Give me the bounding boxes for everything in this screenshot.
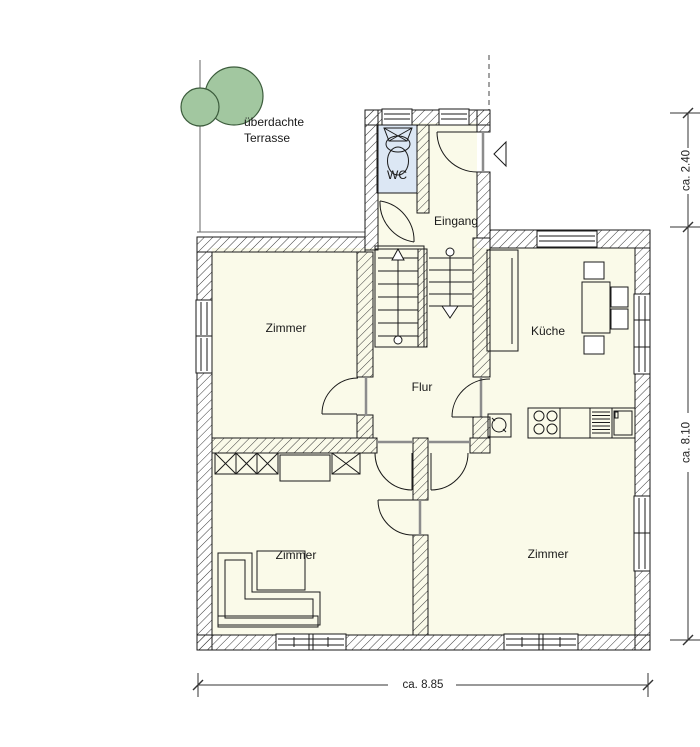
hall-label: Flur [400,380,444,396]
wc-label: WC [377,168,417,184]
room-bottom-left-label: Zimmer [265,548,327,564]
kitchen-label: Küche [520,324,576,340]
entrance-label: Eingang [428,214,484,230]
dimension-vestibule-depth: ca. 2.40 [680,140,695,200]
terrace-label: überdachte Terrasse [244,115,328,146]
floor-plan-drawing [0,0,700,747]
window-bottom-right [504,634,578,650]
dimension-house-depth: ca. 8.10 [680,412,695,472]
room-top-left-label: Zimmer [255,321,317,337]
window-wc-top [382,109,412,125]
floor-plan: überdachte Terrasse WC Eingang Zimmer Kü… [0,0,700,747]
window-room-right [634,496,650,571]
room-bottom-right-label: Zimmer [517,547,579,563]
window-left-2 [196,336,212,373]
window-kitchen-right [634,294,650,374]
window-bottom-left [276,634,346,650]
drainer-icon [592,412,610,433]
entrance-arrow-icon [494,142,506,166]
window-entrance-top [439,109,469,125]
dimension-house-width: ca. 8.85 [392,678,454,693]
window-kitchen-top [537,231,597,247]
window-left-1 [196,300,212,337]
